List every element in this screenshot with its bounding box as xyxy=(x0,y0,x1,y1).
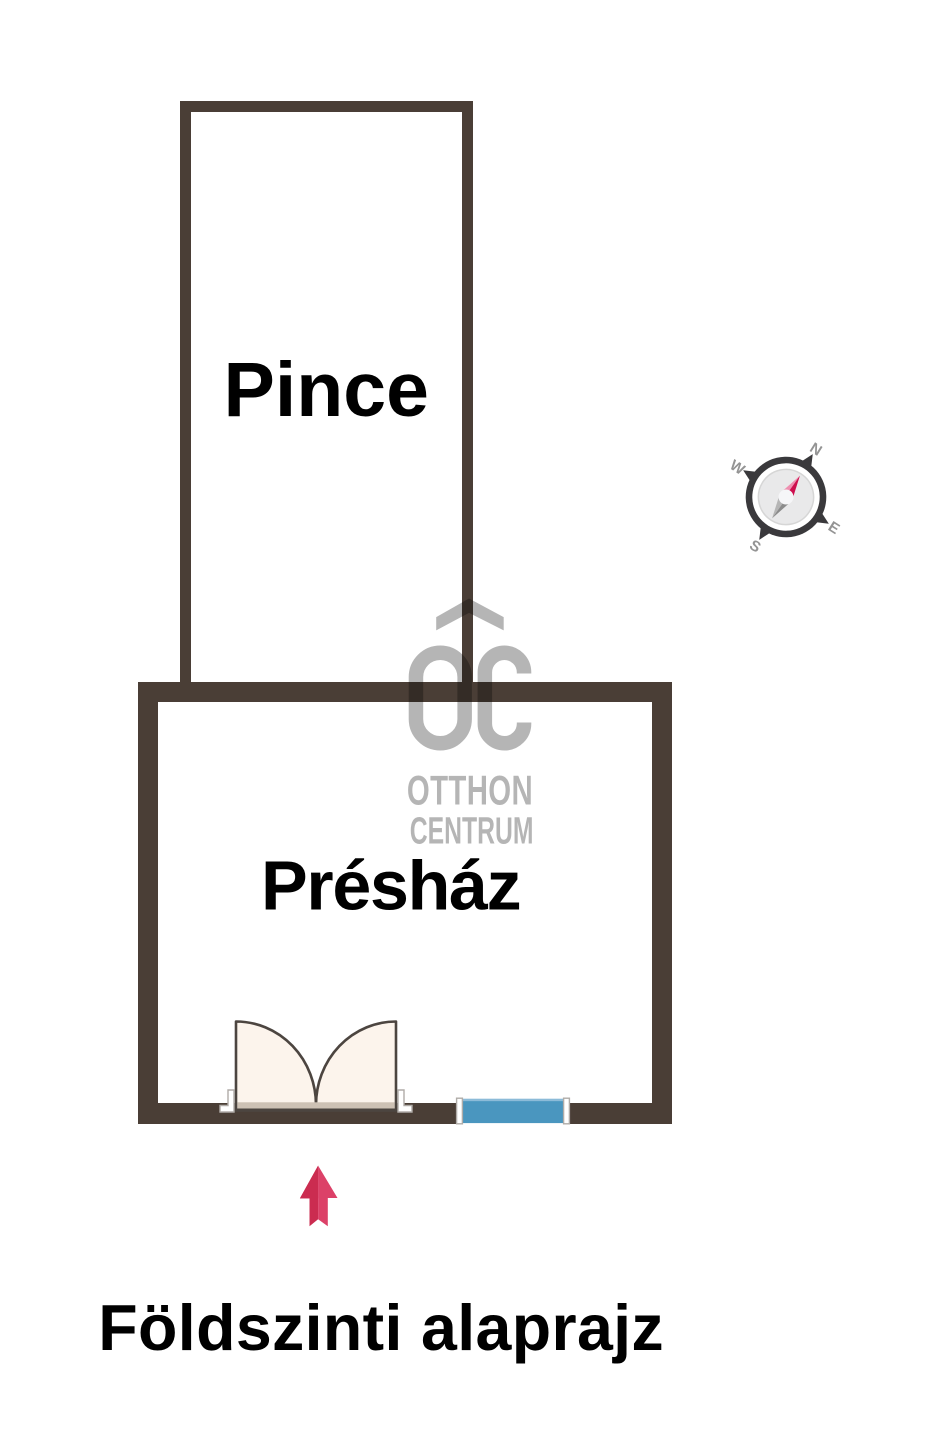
svg-text:Pince: Pince xyxy=(224,347,429,433)
svg-text:CENTRUM: CENTRUM xyxy=(410,809,534,852)
svg-text:Földszinti alaprajz: Földszinti alaprajz xyxy=(98,1292,664,1364)
svg-text:OTTHON: OTTHON xyxy=(407,766,533,814)
svg-text:Présház: Présház xyxy=(261,847,520,925)
